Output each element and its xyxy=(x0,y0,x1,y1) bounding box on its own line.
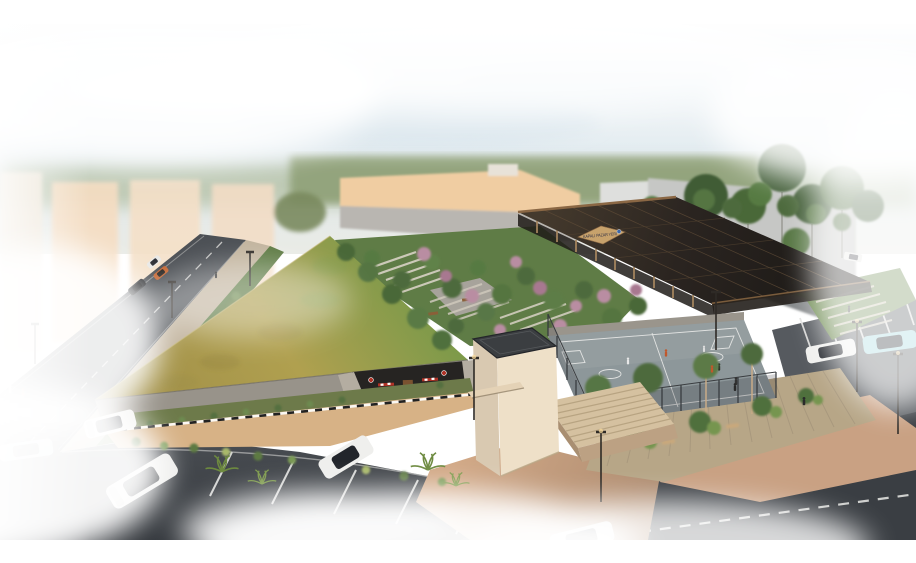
scene-svg: KAPALI PAZAR YERİ xyxy=(0,0,916,563)
traffic-sign xyxy=(369,378,374,383)
bottom-margin xyxy=(0,540,916,563)
render-canvas: KAPALI PAZAR YERİ xyxy=(0,0,916,563)
top-margin xyxy=(0,0,916,24)
market-emblem-icon xyxy=(617,229,621,233)
entrance-kiosk xyxy=(468,328,559,476)
traffic-sign xyxy=(442,371,447,376)
kiosk-wall-left xyxy=(473,339,500,476)
